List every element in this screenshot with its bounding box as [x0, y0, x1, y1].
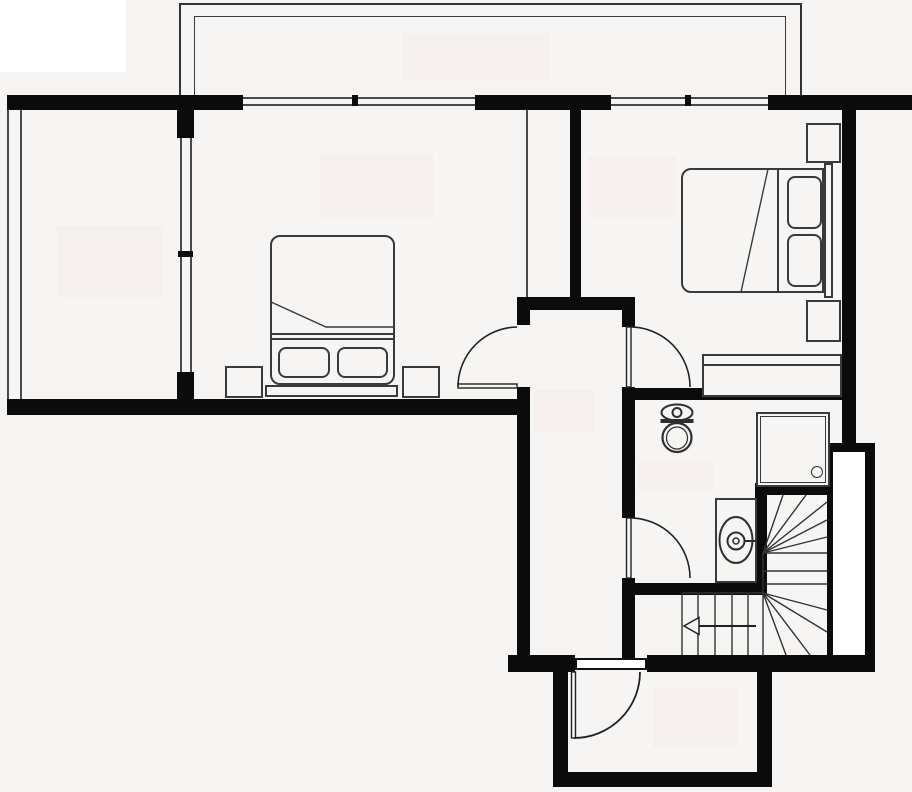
- hall-right-wall-c: [622, 578, 635, 670]
- hall-left-wall-lower: [517, 387, 530, 670]
- hall-left-wall-upper: [517, 297, 530, 325]
- porch-right-wall: [757, 670, 772, 787]
- left-wing-bottom-wall: [7, 399, 530, 415]
- window-right-mullion: [685, 95, 691, 106]
- floor-plan: [0, 0, 912, 792]
- window-left-line-b: [243, 104, 475, 106]
- bedroom-right-west-wall: [570, 105, 581, 297]
- blanked-logo-area: [0, 0, 126, 72]
- room-balcony: [180, 5, 800, 95]
- room-staircase: [682, 495, 827, 655]
- room-bedroom-right: [585, 110, 842, 388]
- hall-right-wall-b: [622, 387, 635, 518]
- entry-threshold: [575, 658, 647, 670]
- top-wall-left-segment: [7, 95, 243, 110]
- loggia-partition-post-top: [177, 110, 194, 138]
- room-hallway: [530, 310, 622, 655]
- window-left-mullion: [352, 95, 358, 106]
- room-porch: [568, 672, 757, 772]
- room-loggia: [9, 110, 177, 399]
- door-leaf-bathroom: [627, 518, 632, 578]
- top-wall-right-segment: [768, 95, 912, 110]
- loggia-partition-mullion: [178, 251, 193, 257]
- window-left-line-a: [243, 97, 475, 99]
- porch-left-wall: [553, 670, 568, 787]
- corridor-thin-wall: [526, 110, 528, 297]
- porch-bottom-wall: [553, 772, 772, 787]
- loggia-partition-post-bottom: [177, 372, 194, 399]
- room-bedroom-left: [194, 110, 517, 399]
- top-wall-mid-segment: [475, 95, 611, 110]
